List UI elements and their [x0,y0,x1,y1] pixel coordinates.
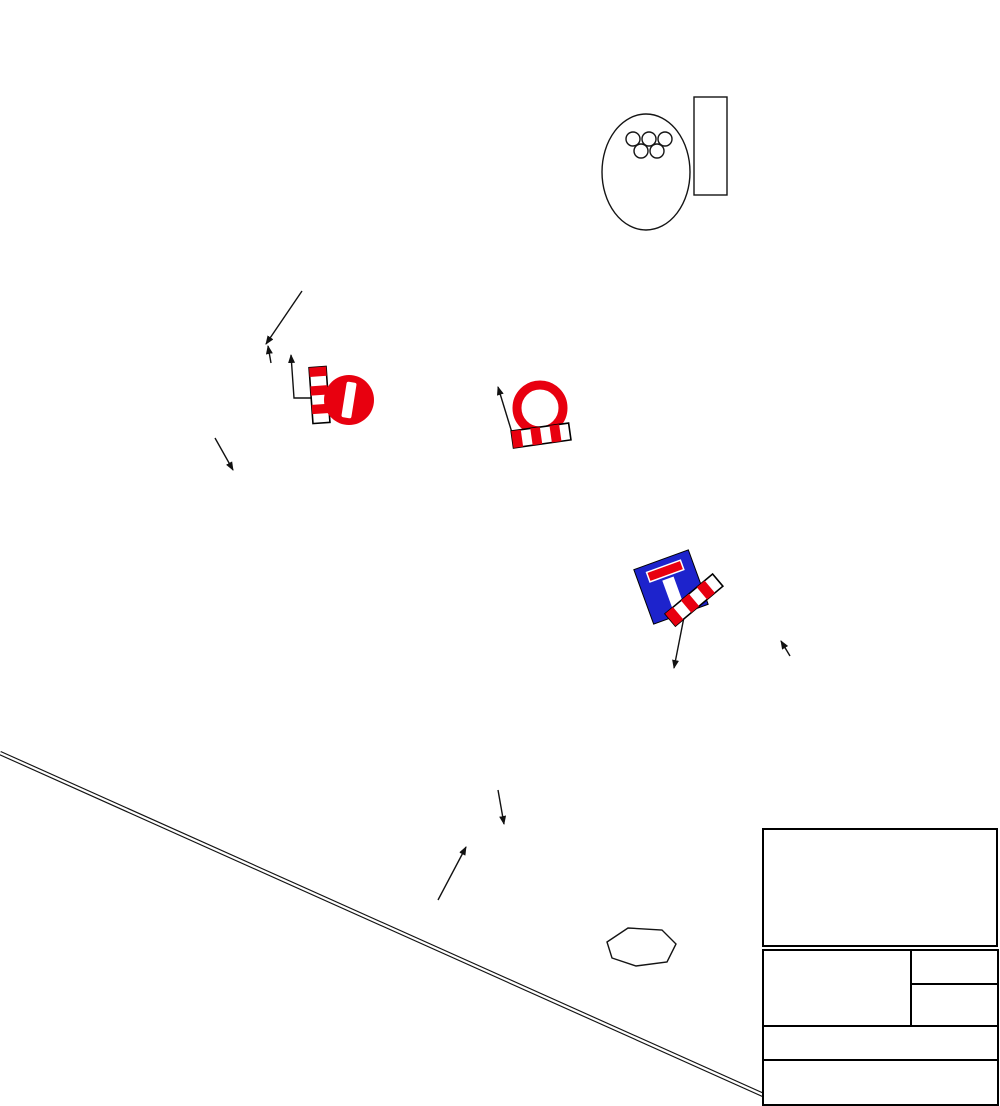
stadium-outline [602,114,690,230]
no-entry-sign-icon [324,375,374,425]
investor-cell [912,951,997,985]
building-outline [694,97,727,195]
location-label [912,985,997,987]
task-cell [764,1025,997,1061]
roadworks-swatch [777,869,818,885]
building-outline [607,928,676,966]
title-block [762,949,999,1106]
task-value [768,1027,993,1031]
drawing-cell [764,1061,997,1104]
traffic-signs [309,367,723,627]
detour-swatch [777,899,818,915]
contractor-cell [764,951,912,1025]
railway-line [0,753,770,1098]
detour-map-drawing [0,0,1000,1106]
legend-item-detour [777,899,828,915]
legend-box [762,828,998,947]
legend-item-roadworks [777,869,828,885]
olympic-rings-icon [626,132,672,158]
